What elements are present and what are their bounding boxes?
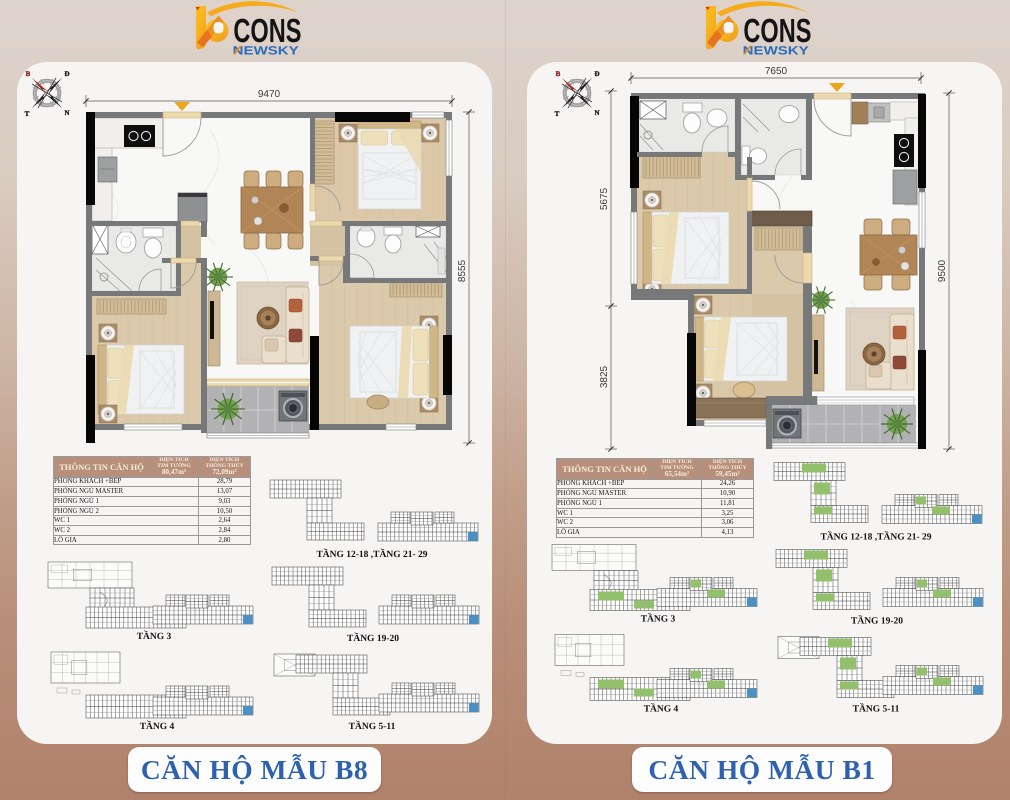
svg-text:NEWSKY: NEWSKY bbox=[743, 44, 809, 58]
svg-text:TẦNG 4: TẦNG 4 bbox=[644, 703, 679, 715]
svg-text:TẦNG 3: TẦNG 3 bbox=[137, 630, 172, 642]
svg-text:TẦNG 3: TẦNG 3 bbox=[641, 613, 676, 625]
svg-text:TẦNG 19-20: TẦNG 19-20 bbox=[347, 632, 399, 644]
svg-text:N: N bbox=[64, 109, 69, 117]
svg-text:T: T bbox=[555, 110, 560, 118]
svg-text:3825: 3825 bbox=[599, 365, 610, 388]
svg-text:N: N bbox=[594, 109, 599, 117]
svg-text:TẦNG 12-18 ,TẦNG 21- 29: TẦNG 12-18 ,TẦNG 21- 29 bbox=[820, 531, 931, 543]
svg-text:TẦNG 5-11: TẦNG 5-11 bbox=[349, 720, 396, 732]
svg-text:5675: 5675 bbox=[599, 187, 610, 210]
svg-text:9500: 9500 bbox=[937, 259, 948, 282]
svg-text:TẦNG 12-18 ,TẦNG 21- 29: TẦNG 12-18 ,TẦNG 21- 29 bbox=[316, 548, 427, 560]
svg-text:TẦNG 5-11: TẦNG 5-11 bbox=[853, 703, 900, 715]
svg-text:8555: 8555 bbox=[457, 259, 468, 282]
svg-text:TẦNG 4: TẦNG 4 bbox=[140, 720, 175, 732]
svg-text:T: T bbox=[25, 110, 30, 118]
svg-text:NEWSKY: NEWSKY bbox=[233, 44, 299, 58]
svg-text:9470: 9470 bbox=[258, 89, 281, 100]
svg-text:B: B bbox=[26, 70, 31, 78]
svg-text:Đ: Đ bbox=[64, 70, 69, 78]
svg-text:Đ: Đ bbox=[594, 70, 599, 78]
svg-text:7650: 7650 bbox=[765, 66, 788, 77]
svg-text:B: B bbox=[556, 70, 561, 78]
svg-text:TẦNG 19-20: TẦNG 19-20 bbox=[851, 615, 903, 627]
